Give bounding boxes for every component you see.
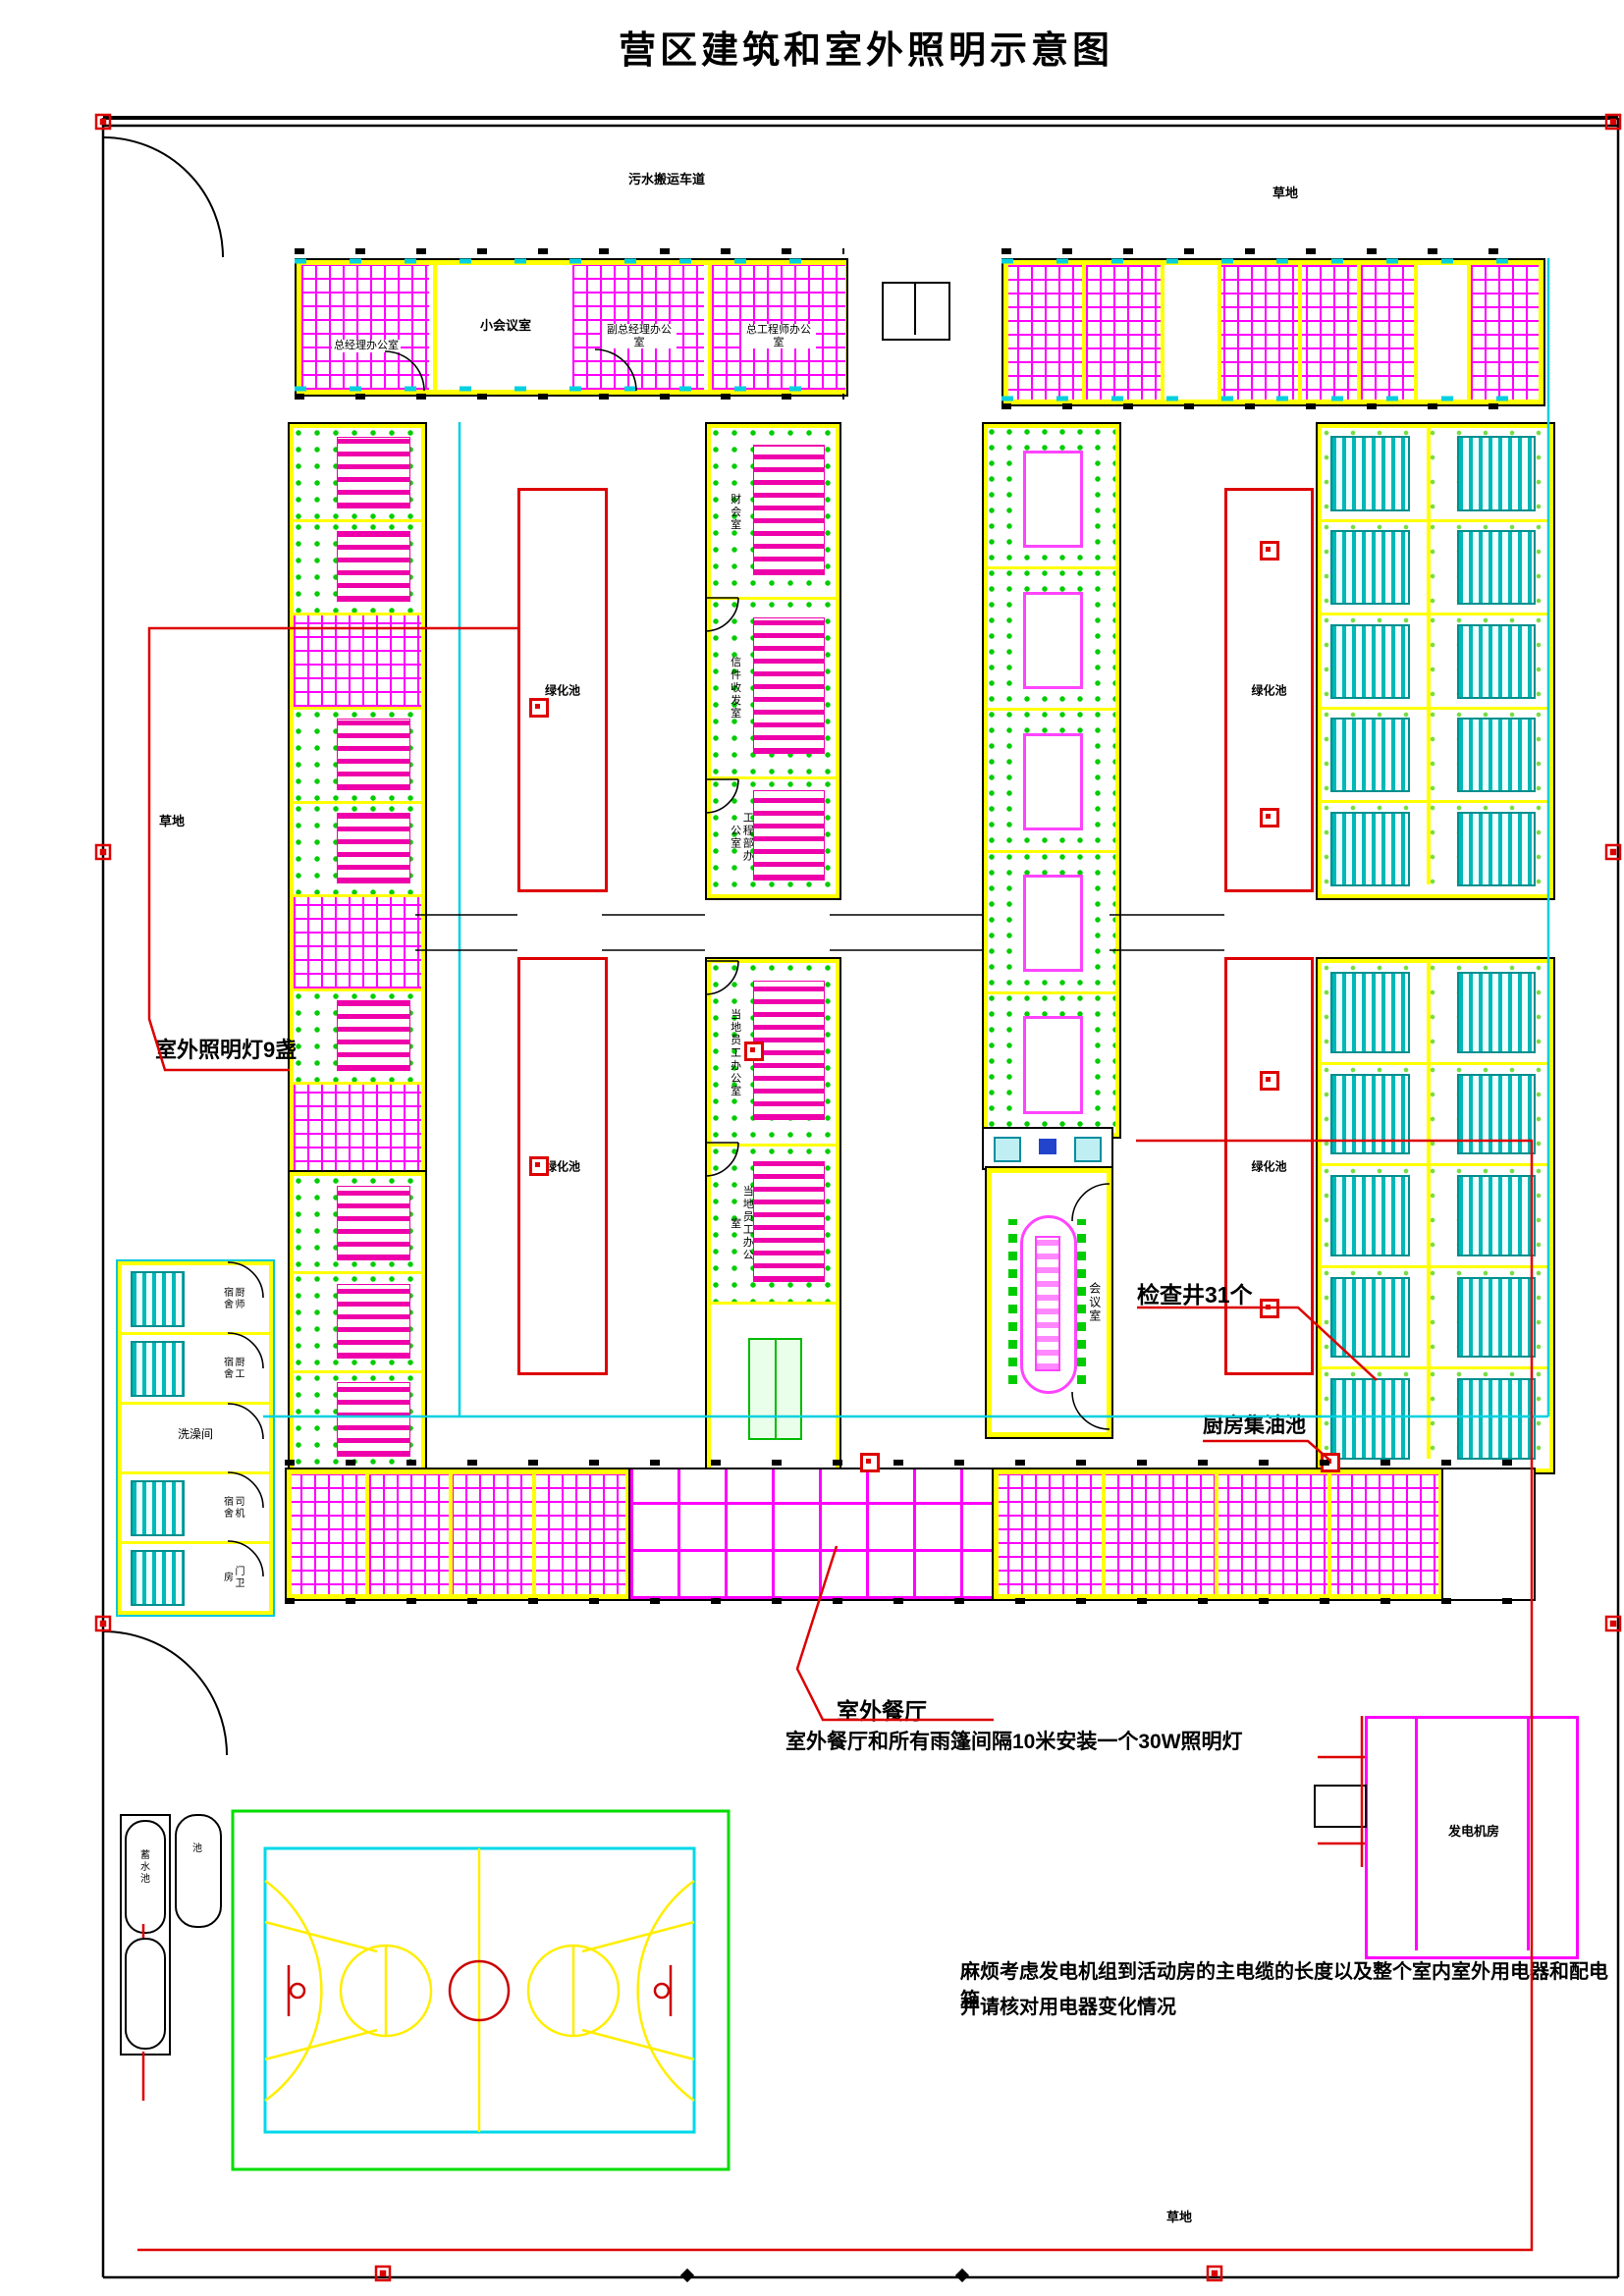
road-label: 污水搬运车道 [628, 169, 705, 187]
water-tank-small-label: 池 [192, 1843, 202, 1855]
building-service-west: 厨师宿舍 厨工宿舍 洗澡间 司机宿舍 门卫房 [116, 1259, 275, 1617]
green-pool-label: 绿化池 [545, 1158, 580, 1175]
building-south-east [992, 1468, 1445, 1601]
room [294, 613, 421, 707]
room-engineering: 工程部办公室 [711, 776, 836, 894]
building-west-offices-south [288, 1170, 427, 1474]
room-label: 洗澡间 [178, 1428, 213, 1442]
building-west-offices [288, 422, 427, 1182]
water-tank-enclosure: 蓄水池 [120, 1814, 171, 2056]
room-driver-dorm: 司机宿舍 [122, 1471, 269, 1541]
room-mail: 信件收发室 [711, 597, 836, 776]
room-label: 当地员工办公室 [729, 1185, 753, 1262]
room-local-staff-2: 当地员工办公室 [711, 1144, 836, 1303]
conference-table [1020, 1215, 1077, 1394]
room [988, 708, 1115, 849]
room [294, 894, 421, 988]
court-red-marks [289, 1961, 671, 2020]
room [294, 801, 421, 895]
room-activity [711, 1302, 836, 1468]
room [1322, 707, 1549, 801]
room-label: 总工程师办公室 [741, 324, 816, 348]
room [1322, 1062, 1549, 1164]
utility-box [882, 282, 950, 341]
room [1322, 1163, 1549, 1265]
room-label: 财会室 [729, 493, 741, 531]
building-dormitory-east-south [1316, 957, 1555, 1474]
room-label: 小会议室 [460, 319, 551, 334]
generator-room: 发电机房 [1365, 1716, 1579, 1959]
room-gap [1161, 265, 1218, 400]
green-pool: 绿化池 [517, 488, 608, 892]
room [988, 428, 1115, 566]
basketball-court [233, 1811, 729, 2169]
building-office-column-south: 当地员工办公室 当地员工办公室 [705, 957, 841, 1474]
room-cook-dorm: 厨师宿舍 [122, 1265, 269, 1332]
outdoor-lamp-icon [1260, 541, 1279, 561]
room-label: 总经理办公室 [332, 340, 401, 352]
room-general-manager-office: 总经理办公室 [301, 265, 429, 390]
outdoor-lamp-icon [1260, 808, 1279, 828]
room [1322, 613, 1549, 707]
room [1322, 800, 1549, 894]
room [1322, 1366, 1549, 1468]
room-label: 副总经理办公室 [602, 324, 677, 348]
building-dining-rooms [982, 422, 1121, 1139]
room-label: 司机宿舍 [221, 1491, 244, 1524]
drawing-title: 营区建筑和室外照明示意图 [619, 20, 1113, 74]
chairs-right [1077, 1219, 1086, 1384]
distribution-box [1314, 1785, 1367, 1828]
conference-room: 会议室 [985, 1166, 1113, 1439]
annotation-grease-pit: 厨房集油池 [1203, 1410, 1306, 1439]
room [294, 1370, 421, 1468]
site-plan-canvas: 营区建筑和室外照明示意图 污水搬运车道 草地 草地 草地 总经理办公室 小会议室… [0, 0, 1624, 2296]
room-deputy-manager-office: 副总经理办公室 [572, 265, 704, 390]
gate-arc-north [103, 137, 223, 257]
building-south-west [285, 1468, 632, 1601]
water-tank [125, 1938, 166, 2050]
annotation-outdoor-dining: 室外餐厅 [837, 1692, 927, 1726]
room [294, 707, 421, 801]
water-tank-label: 蓄水池 [137, 1849, 149, 1885]
generator-label: 发电机房 [1425, 1825, 1523, 1840]
room [294, 519, 421, 614]
annotation-cable-note-2: 并请核对用电器变化情况 [960, 1991, 1176, 2019]
room-small-meeting: 小会议室 [433, 265, 576, 390]
room [988, 566, 1115, 708]
dorm-center-wall [1427, 426, 1431, 884]
room [988, 850, 1115, 991]
chairs-left [1008, 1219, 1017, 1384]
room-label: 门卫房 [221, 1561, 244, 1594]
room-shower: 洗澡间 [122, 1402, 269, 1471]
building-dormitory-east-north [1316, 422, 1555, 900]
room-finance: 财会室 [711, 428, 836, 597]
table-tennis-table [748, 1338, 802, 1440]
room [294, 1176, 421, 1271]
room-label: 工程部办公室 [729, 808, 753, 866]
dorm-center-wall [1427, 961, 1431, 1459]
outdoor-lamp-icon [529, 698, 549, 718]
bottom-diamond-markers [680, 2269, 969, 2282]
gate-arc-south [103, 1631, 227, 1755]
outdoor-dining-canopy [628, 1468, 996, 1601]
room [1322, 963, 1549, 1062]
washroom [982, 1127, 1113, 1170]
room [988, 991, 1115, 1133]
grass-label-left: 草地 [159, 811, 185, 829]
building-headquarters: 总经理办公室 小会议室 副总经理办公室 总工程师办公室 [295, 258, 848, 397]
room-local-staff-1: 当地员工办公室 [711, 963, 836, 1144]
room-label: 信件收发室 [729, 656, 741, 720]
room-label: 当地员工办公室 [729, 1008, 741, 1097]
green-pool-label: 绿化池 [1251, 682, 1286, 699]
annotation-dining-note: 室外餐厅和所有雨篷间隔10米安装一个30W照明灯 [785, 1726, 1243, 1755]
room [294, 428, 421, 519]
room [1322, 428, 1549, 519]
grass-label-top: 草地 [1272, 183, 1298, 201]
outdoor-lamp-icon [1260, 1071, 1279, 1091]
room-guard: 门卫房 [122, 1541, 269, 1611]
room-label: 厨工宿舍 [221, 1352, 244, 1385]
room-chief-engineer-office: 总工程师办公室 [708, 265, 845, 390]
outdoor-lamp-icon [529, 1156, 549, 1176]
water-tank-small: 池 [175, 1814, 222, 1928]
building-dormitory-north [1001, 258, 1545, 406]
building-office-column-north: 财会室 信件收发室 工程部办公室 [705, 422, 841, 900]
room-label: 厨师宿舍 [221, 1282, 244, 1315]
room [1322, 1265, 1549, 1367]
utility-box-divider [914, 284, 916, 335]
outdoor-lamp-icon [1260, 1299, 1279, 1318]
annotation-lights: 室外照明灯9盏 [155, 1033, 297, 1064]
room [294, 988, 421, 1083]
grass-label-bottom: 草地 [1166, 2207, 1192, 2225]
building-south-end-room [1441, 1468, 1536, 1601]
green-pool-label: 绿化池 [1251, 1158, 1286, 1175]
room-gap [1414, 265, 1467, 400]
green-pool-label: 绿化池 [545, 682, 580, 699]
annotation-wells: 检查井31个 [1137, 1276, 1253, 1309]
outdoor-lamp-icon [1321, 1453, 1340, 1472]
outdoor-lamp-icon [860, 1453, 880, 1472]
leader-grease-pit [1203, 1441, 1330, 1461]
room [1322, 519, 1549, 614]
conference-room-label: 会议室 [1087, 1282, 1101, 1323]
court-yellow-lines [265, 1848, 694, 2132]
room-kitchen-staff-dorm: 厨工宿舍 [122, 1332, 269, 1402]
room [294, 1271, 421, 1369]
outdoor-lamp-icon [744, 1041, 764, 1061]
room [294, 1082, 421, 1176]
